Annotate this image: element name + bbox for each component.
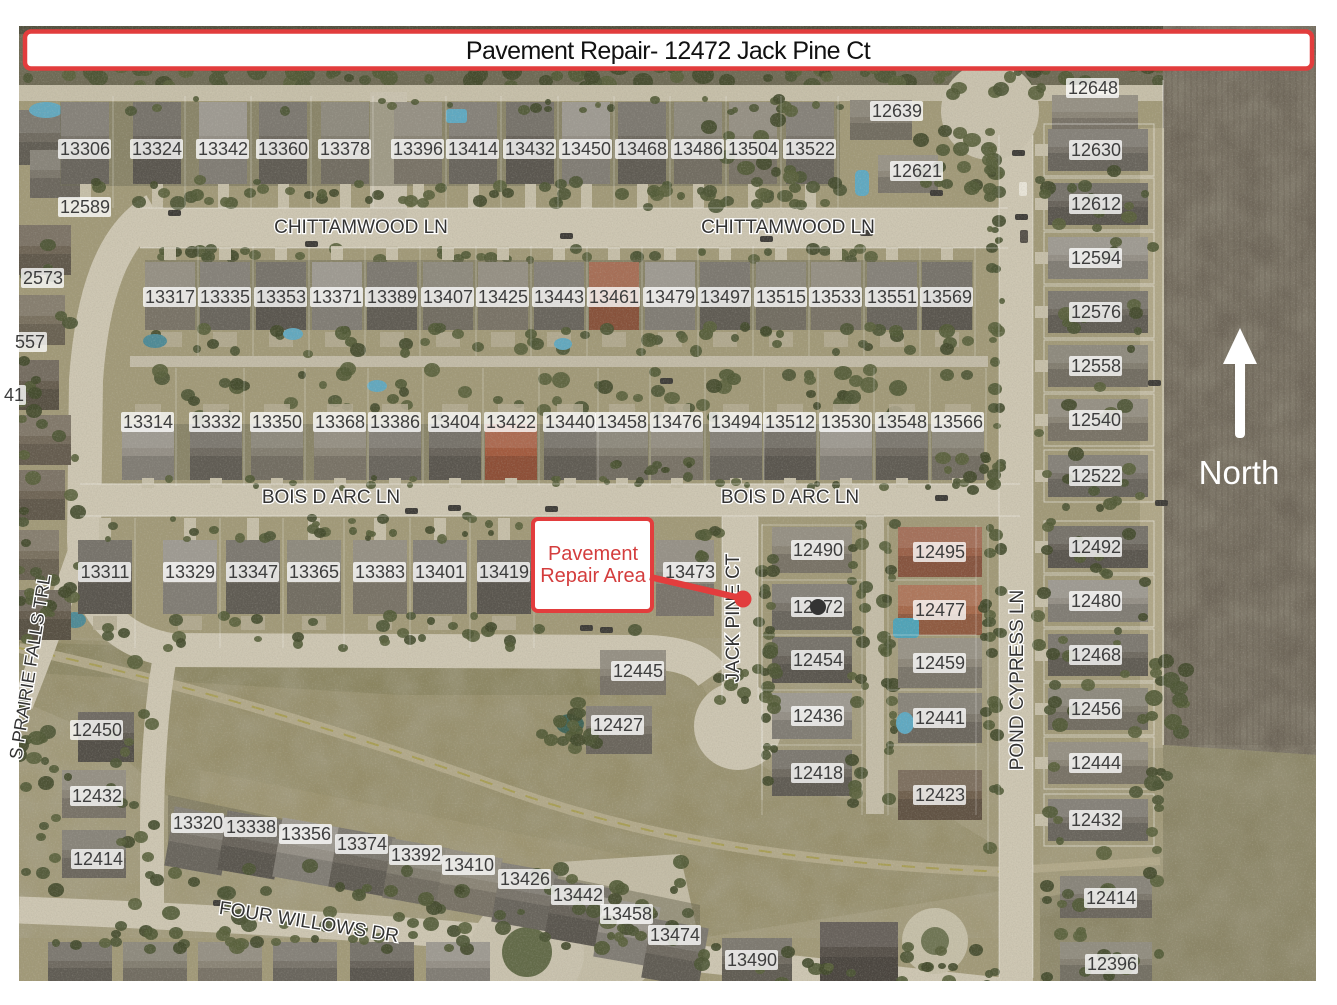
- svg-text:2573: 2573: [23, 268, 63, 288]
- svg-text:13350: 13350: [252, 412, 302, 432]
- svg-text:Pavement Repair- 12472 Jack Pi: Pavement Repair- 12472 Jack Pine Ct: [466, 37, 871, 65]
- svg-text:12621: 12621: [892, 161, 942, 181]
- svg-text:13378: 13378: [320, 139, 370, 159]
- svg-text:13425: 13425: [478, 287, 528, 307]
- svg-text:12648: 12648: [1068, 78, 1118, 98]
- svg-text:13512: 13512: [765, 412, 815, 432]
- svg-text:12495: 12495: [915, 542, 965, 562]
- svg-text:North: North: [1199, 454, 1280, 491]
- svg-text:13356: 13356: [281, 824, 331, 844]
- svg-text:13389: 13389: [367, 287, 417, 307]
- svg-text:13396: 13396: [393, 139, 443, 159]
- svg-text:Repair Area: Repair Area: [540, 565, 646, 587]
- svg-text:Pavement: Pavement: [548, 543, 638, 565]
- svg-text:13497: 13497: [700, 287, 750, 307]
- svg-text:13494: 13494: [711, 412, 761, 432]
- svg-text:13419: 13419: [479, 562, 529, 582]
- svg-text:13551: 13551: [867, 287, 917, 307]
- svg-text:JACK PINE CT: JACK PINE CT: [723, 553, 744, 682]
- svg-text:POND CYPRESS LN: POND CYPRESS LN: [1007, 590, 1028, 771]
- svg-text:12432: 12432: [72, 786, 122, 806]
- svg-text:13566: 13566: [933, 412, 983, 432]
- svg-text:13332: 13332: [191, 412, 241, 432]
- svg-text:13461: 13461: [589, 287, 639, 307]
- svg-text:CHITTAMWOOD LN: CHITTAMWOOD LN: [701, 217, 875, 238]
- svg-text:12456: 12456: [1071, 699, 1121, 719]
- svg-text:13368: 13368: [315, 412, 365, 432]
- svg-text:13504: 13504: [728, 139, 778, 159]
- svg-text:13422: 13422: [486, 412, 536, 432]
- svg-text:13374: 13374: [337, 834, 387, 854]
- svg-text:12418: 12418: [793, 763, 843, 783]
- svg-text:13479: 13479: [645, 287, 695, 307]
- svg-text:13311: 13311: [81, 562, 130, 582]
- svg-text:13458: 13458: [597, 412, 647, 432]
- svg-text:12480: 12480: [1071, 591, 1121, 611]
- svg-text:12490: 12490: [793, 540, 843, 560]
- svg-text:BOIS D ARC LN: BOIS D ARC LN: [721, 487, 859, 508]
- svg-text:13314: 13314: [123, 412, 173, 432]
- svg-text:13443: 13443: [534, 287, 584, 307]
- svg-text:12432: 12432: [1071, 810, 1121, 830]
- svg-text:13515: 13515: [756, 287, 806, 307]
- svg-text:13329: 13329: [165, 562, 215, 582]
- svg-text:13442: 13442: [553, 885, 603, 905]
- svg-text:12441: 12441: [915, 708, 965, 728]
- svg-text:13440: 13440: [545, 412, 595, 432]
- svg-text:13569: 13569: [922, 287, 972, 307]
- svg-text:13486: 13486: [673, 139, 723, 159]
- svg-text:13426: 13426: [500, 869, 550, 889]
- svg-text:13474: 13474: [650, 925, 700, 945]
- svg-text:12639: 12639: [872, 101, 922, 121]
- svg-text:13533: 13533: [811, 287, 861, 307]
- svg-text:12423: 12423: [915, 785, 965, 805]
- svg-text:557: 557: [15, 332, 45, 352]
- svg-text:13468: 13468: [617, 139, 667, 159]
- svg-text:12589: 12589: [60, 197, 110, 217]
- svg-text:13490: 13490: [727, 950, 777, 970]
- svg-text:13347: 13347: [228, 562, 278, 582]
- svg-text:12612: 12612: [1071, 194, 1121, 214]
- svg-text:13383: 13383: [355, 562, 405, 582]
- svg-text:12594: 12594: [1071, 248, 1121, 268]
- svg-text:41: 41: [4, 385, 24, 405]
- svg-text:CHITTAMWOOD LN: CHITTAMWOOD LN: [274, 217, 448, 238]
- svg-text:13407: 13407: [423, 287, 473, 307]
- svg-text:13548: 13548: [877, 412, 927, 432]
- svg-text:13371: 13371: [312, 287, 362, 307]
- svg-text:BOIS D ARC LN: BOIS D ARC LN: [262, 487, 400, 508]
- svg-text:13365: 13365: [289, 562, 339, 582]
- svg-text:12540: 12540: [1071, 410, 1121, 430]
- svg-text:13317: 13317: [145, 287, 195, 307]
- svg-text:12492: 12492: [1071, 537, 1121, 557]
- svg-text:13401: 13401: [415, 562, 465, 582]
- svg-text:13414: 13414: [448, 139, 498, 159]
- svg-text:13306: 13306: [60, 139, 110, 159]
- svg-text:13324: 13324: [132, 139, 182, 159]
- svg-text:12576: 12576: [1071, 302, 1121, 322]
- svg-text:12454: 12454: [793, 650, 843, 670]
- svg-text:13353: 13353: [256, 287, 306, 307]
- svg-text:12444: 12444: [1071, 753, 1121, 773]
- svg-text:13342: 13342: [198, 139, 248, 159]
- svg-text:12630: 12630: [1071, 140, 1121, 160]
- svg-text:13338: 13338: [226, 817, 276, 837]
- svg-text:13386: 13386: [370, 412, 420, 432]
- svg-text:13320: 13320: [173, 813, 223, 833]
- svg-text:12445: 12445: [613, 661, 663, 681]
- svg-text:13458: 13458: [602, 904, 652, 924]
- svg-text:13410: 13410: [444, 855, 494, 875]
- svg-text:13335: 13335: [200, 287, 250, 307]
- svg-text:12477: 12477: [915, 600, 965, 620]
- svg-text:13432: 13432: [505, 139, 555, 159]
- svg-text:13392: 13392: [391, 845, 441, 865]
- svg-text:13450: 13450: [561, 139, 611, 159]
- svg-text:13522: 13522: [785, 139, 835, 159]
- svg-text:12396: 12396: [1087, 954, 1137, 974]
- svg-text:12414: 12414: [1086, 888, 1136, 908]
- svg-text:12522: 12522: [1071, 466, 1121, 486]
- svg-text:13360: 13360: [258, 139, 308, 159]
- svg-text:12450: 12450: [72, 720, 122, 740]
- svg-text:13404: 13404: [430, 412, 480, 432]
- svg-text:12414: 12414: [73, 849, 123, 869]
- svg-text:12459: 12459: [915, 653, 965, 673]
- svg-text:12468: 12468: [1071, 645, 1121, 665]
- svg-text:13476: 13476: [652, 412, 702, 432]
- svg-text:12427: 12427: [593, 715, 643, 735]
- svg-text:13530: 13530: [821, 412, 871, 432]
- svg-text:12558: 12558: [1071, 356, 1121, 376]
- svg-text:12436: 12436: [793, 706, 843, 726]
